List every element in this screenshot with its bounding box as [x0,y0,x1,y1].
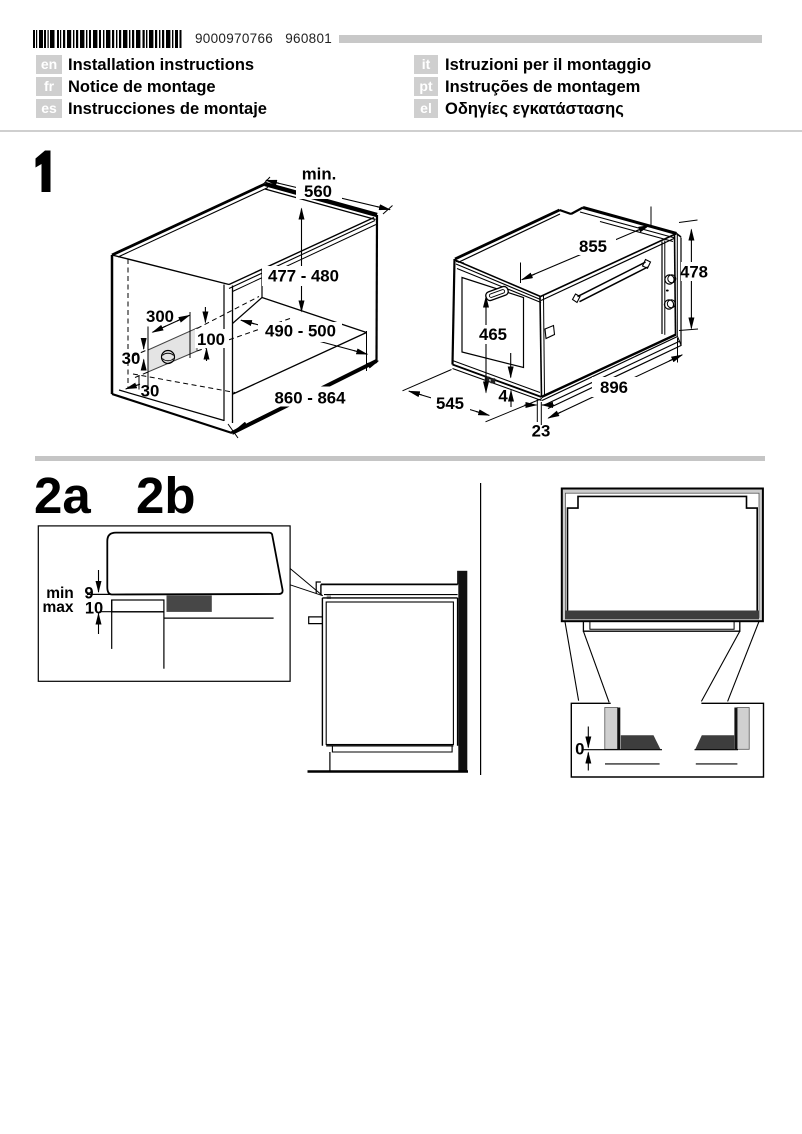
svg-text:30: 30 [122,349,141,368]
svg-text:855: 855 [579,237,607,256]
svg-text:4: 4 [498,387,508,406]
svg-text:465: 465 [479,325,507,344]
svg-text:min.: min. [302,165,337,184]
svg-text:560: 560 [304,182,332,201]
svg-text:477 - 480: 477 - 480 [268,267,339,286]
svg-text:896: 896 [600,378,628,397]
svg-text:545: 545 [436,394,464,413]
svg-text:100: 100 [197,330,225,349]
svg-text:max: max [42,599,73,616]
svg-text:300: 300 [146,307,174,326]
svg-text:490 - 500: 490 - 500 [265,322,336,341]
svg-text:30: 30 [141,382,160,401]
svg-text:10: 10 [85,600,103,618]
svg-text:478: 478 [680,263,708,282]
svg-text:23: 23 [532,422,551,441]
svg-text:0: 0 [575,740,584,759]
svg-text:860 - 864: 860 - 864 [275,389,347,408]
